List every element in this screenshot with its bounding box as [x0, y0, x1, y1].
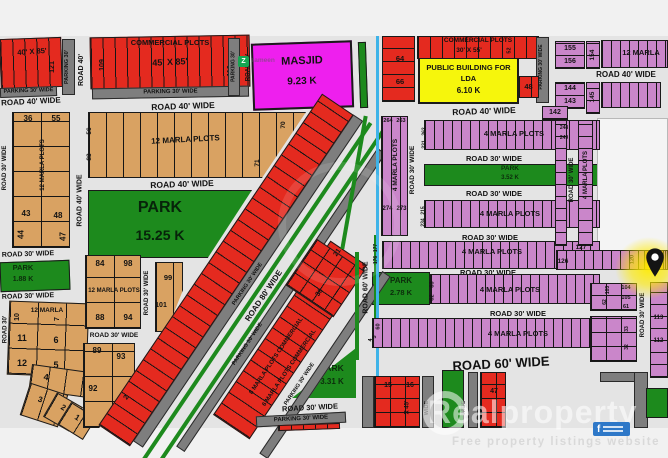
r40-label: ROAD 40' WIDE [146, 178, 218, 192]
n66-label: 66 [390, 76, 410, 88]
r30-label: ROAD 30' WIDE [452, 188, 536, 199]
r30-label: ROAD 30' WIDE [142, 262, 152, 324]
n126-label: 126 [554, 257, 572, 268]
n142-label: 142 [542, 107, 568, 119]
n113-label: 113 [650, 313, 667, 323]
m4-label: 4 MARLA PLOTS [466, 128, 562, 140]
vacant-area [597, 118, 668, 252]
r30-label: ROAD 30' WIDE [408, 133, 418, 207]
n92-label: 92 [82, 383, 104, 395]
n48-label: 48 [519, 80, 538, 93]
sx45-label: X 45' [404, 391, 413, 425]
n62-label: 62 [602, 292, 610, 312]
m4-label: 4 MARLA PLOTS [444, 246, 540, 258]
parking-strip [362, 376, 374, 428]
n99-label: 99 [157, 272, 179, 284]
n83-label: 83 [85, 135, 95, 179]
r30s-label: ROAD 30' [2, 308, 11, 352]
n93-label: 93 [110, 351, 132, 363]
facebook-icon: f [597, 424, 600, 435]
n52-label: 52 [506, 37, 515, 65]
n47-label: 47 [58, 225, 71, 249]
n156-label: 156 [556, 55, 584, 68]
n11-label: 11 [10, 332, 34, 346]
m4-label: 4 MARLA PLOTS [581, 135, 591, 215]
n109-label: 109 [98, 40, 108, 90]
badge-lines [603, 426, 623, 432]
n61-label: 61 [618, 303, 634, 312]
m4-label: 4 MARLA PLOTS [462, 284, 558, 296]
n155-label: 155 [556, 42, 584, 55]
n248-label: 248 [556, 124, 572, 134]
r40s-label: ROAD 40' [76, 48, 88, 92]
n64-label: 64 [390, 53, 410, 65]
commercial-col-ne [382, 36, 415, 102]
n145-label: 145 [588, 82, 598, 112]
commercial-label: COMMERCIAL PLOTS [95, 38, 245, 48]
n112-label: 112 [650, 336, 667, 346]
s30x55-label: 30' X 55' [436, 47, 502, 56]
r30-label: ROAD 30' WIDE [84, 331, 144, 341]
n94-label: 94 [116, 312, 140, 325]
n154-label: 154 [588, 40, 598, 70]
r40-label: ROAD 40' WIDE [75, 159, 86, 243]
n89-label: 89 [86, 345, 108, 357]
n263-label: 263 [394, 117, 408, 127]
n144-label: 144 [556, 83, 584, 95]
r40-label: ROAD 40' WIDE [584, 69, 668, 81]
n4-label: 4 [368, 328, 376, 352]
watermark-tagline: Free property listings website [452, 436, 668, 452]
m4-label: 4 MARLA PLOTS [462, 208, 558, 220]
road60-median [358, 42, 368, 108]
n44-label: 44 [16, 223, 29, 247]
m12-label: 12 MARLA PLOTS [38, 136, 48, 194]
plot-row-edge [278, 423, 340, 431]
n32-label: 32 [624, 337, 632, 357]
r30-label: ROAD 30' WIDE [567, 142, 577, 218]
n36-label: 36 [16, 113, 40, 126]
r40-label: ROAD 40' WIDE [2, 95, 60, 109]
p30w-label: PARKING 30' WIDE [538, 33, 546, 101]
m4-label: 4 MARLA PLOTS [470, 328, 566, 340]
plot-map-page: MASJID 9.23 K PUBLIC BUILDING FOR LDA 6.… [0, 0, 668, 458]
n264-label: 264 [381, 117, 395, 127]
plot-row [601, 82, 661, 108]
n231-label: 231 [421, 132, 430, 158]
commercial-label: COMMERCIAL PLOTS [424, 37, 532, 46]
ghost-watermark-icon [278, 162, 402, 286]
n98-label: 98 [116, 258, 140, 271]
n10-label: 10 [13, 299, 23, 335]
r30-label: ROAD 30' WIDE [0, 249, 56, 261]
p30-label: PARKING 30' [230, 39, 239, 95]
n48-label: 48 [46, 210, 70, 223]
p30w-label: PARKING 30' WIDE [92, 86, 249, 100]
r30-label: ROAD 30' WIDE [0, 126, 10, 210]
zameen-logo-icon: Z [238, 56, 249, 67]
n43-label: 43 [14, 208, 38, 221]
n70-label: 70 [279, 103, 289, 147]
p30-label: PARKING 30' [63, 47, 73, 87]
n234-label: 234 [420, 210, 429, 236]
n82-label: 82 [429, 285, 438, 311]
r30-label: ROAD 30' WIDE [452, 153, 536, 164]
location-pin-icon [645, 247, 665, 278]
facebook-badge: f [593, 422, 630, 436]
n15-label: 15 [378, 380, 398, 392]
zameen-logo-text: zameen [251, 57, 287, 67]
n127-label: 127 [572, 243, 590, 254]
n71-label: 71 [253, 141, 263, 185]
watermark-brand: Realproperty [428, 394, 668, 436]
r30s-label: ROAD 30' [245, 41, 254, 95]
n88-label: 88 [88, 312, 112, 325]
n249-label: 249 [556, 134, 572, 144]
n55-label: 55 [44, 113, 68, 126]
n7-label: 7 [53, 301, 63, 337]
m12-label: 12 MARLA PLOTS [84, 287, 144, 296]
n33-label: 33 [624, 319, 632, 339]
r40-label: ROAD 40' WIDE [448, 104, 520, 119]
m12s-label: 12 MARLA [614, 47, 668, 59]
n84-label: 84 [88, 258, 112, 271]
r40-label: ROAD 40' WIDE [148, 100, 218, 113]
m12s-label: 12 MARLA [22, 306, 72, 316]
n101-label: 101 [150, 300, 172, 312]
n6-label: 6 [44, 334, 68, 348]
